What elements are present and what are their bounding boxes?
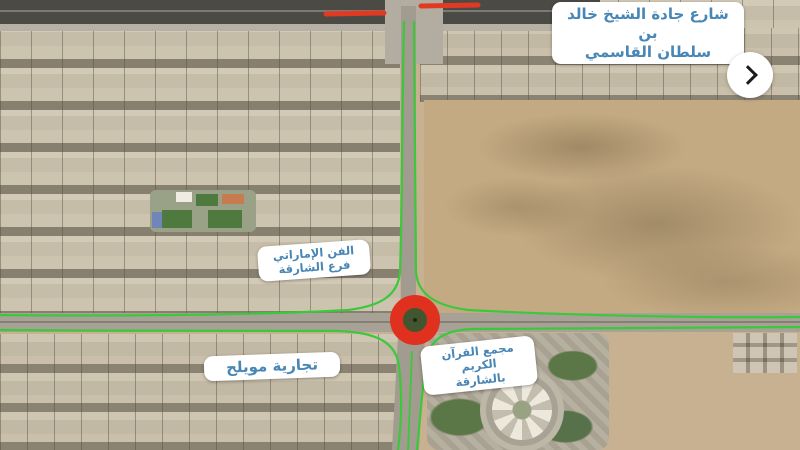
- park-lawn: [208, 210, 242, 228]
- urban-district-southwest: [0, 334, 398, 450]
- park-pavilion: [222, 194, 244, 204]
- park-building: [176, 192, 192, 202]
- next-button[interactable]: [727, 52, 773, 98]
- buildings-cluster-southeast: [733, 333, 797, 373]
- satellite-map-canvas: شارع جادة الشيخ خالد بن سلطان القاسمي ال…: [0, 0, 800, 450]
- park-lawn: [162, 210, 192, 228]
- street-name-label: شارع جادة الشيخ خالد بن سلطان القاسمي: [552, 2, 744, 64]
- desert-lot: [424, 100, 800, 314]
- avenue-north-arm: [401, 6, 416, 316]
- park-court: [152, 212, 162, 228]
- cross-road-horizontal: [0, 313, 800, 332]
- highway-service-road: [0, 24, 556, 31]
- street-name-line2: سلطان القاسمي: [560, 43, 736, 62]
- muwaileh-commercial-label: تجارية مويلح: [204, 352, 341, 381]
- neighborhood-park: [150, 190, 256, 232]
- chevron-right-icon: [738, 65, 758, 85]
- quran-complex-building: [492, 380, 552, 440]
- highway-top: [0, 0, 600, 24]
- street-name-line1: شارع جادة الشيخ خالد بن: [560, 5, 736, 43]
- park-lawn: [196, 194, 218, 206]
- muwaileh-label-line1: تجارية مويلح: [212, 355, 333, 378]
